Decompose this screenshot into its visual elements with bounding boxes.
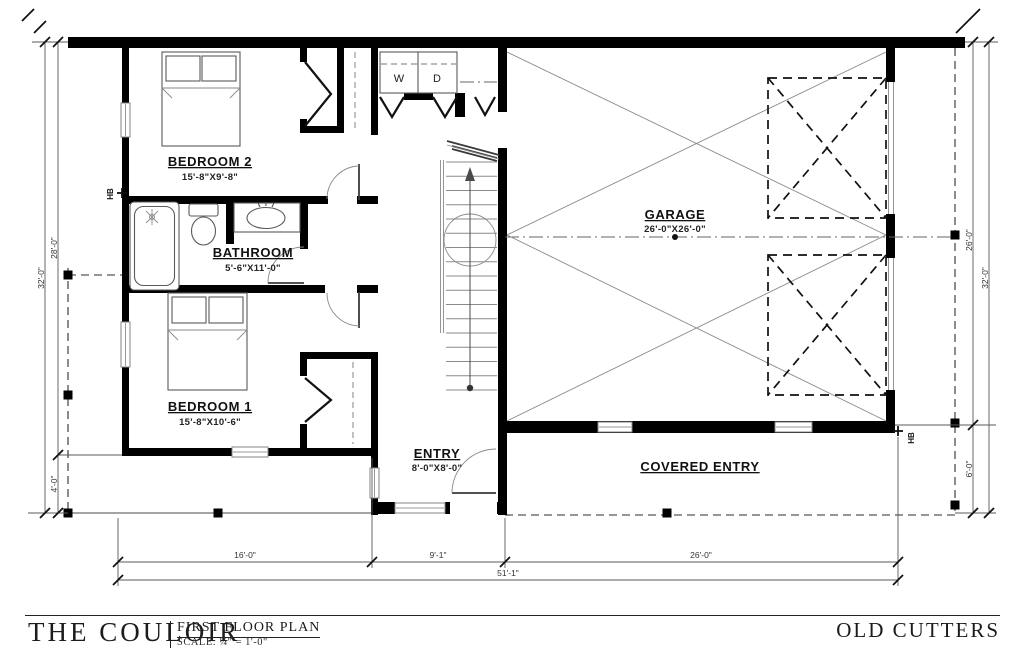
bedroom1-dims: 15'-8"X10'-6" bbox=[179, 417, 241, 428]
dim-left-main: 28'-0" bbox=[49, 237, 59, 259]
entry-dims: 8'-0"X8'-0" bbox=[412, 463, 463, 474]
porch-post bbox=[214, 509, 223, 518]
bedroom1-door bbox=[327, 292, 359, 328]
porch-post bbox=[951, 501, 960, 510]
bifold-door-icon bbox=[380, 97, 404, 117]
development-name: OLD CUTTERS bbox=[836, 618, 1000, 643]
title-block-rule bbox=[25, 615, 1000, 616]
porch-post bbox=[663, 509, 672, 518]
floor-plan-canvas: W D bbox=[0, 0, 1024, 663]
bathtub-icon bbox=[130, 202, 179, 290]
hose-bib-right-label: HB bbox=[907, 432, 916, 444]
bathroom-dims: 5'-6"X11'-0" bbox=[225, 263, 281, 274]
dim-right-overall: 32'-0" bbox=[980, 267, 990, 289]
porch-post bbox=[951, 231, 960, 240]
bifold-door-icon bbox=[433, 97, 457, 117]
floor-plan-sheet: W D bbox=[0, 0, 1024, 663]
window bbox=[121, 322, 130, 367]
porch-post bbox=[951, 419, 960, 428]
dim-right-garage: 26'-0" bbox=[964, 229, 974, 251]
sheet-title: FIRST FLOOR PLAN bbox=[177, 620, 320, 638]
laundry-closet: W D bbox=[380, 52, 457, 93]
dim-left-porch: 4'-0" bbox=[49, 476, 59, 493]
scale-note: SCALE: ¼" = 1'-0" bbox=[177, 637, 268, 648]
stair-treads bbox=[446, 162, 497, 390]
dim-bottom-entry: 9'-1" bbox=[430, 550, 447, 560]
window bbox=[598, 422, 632, 432]
bifold-door-icon bbox=[475, 97, 495, 115]
garage-storage-box bbox=[768, 255, 886, 395]
hose-bib-right: HB bbox=[893, 426, 916, 444]
dim-bottom-garage: 26'-0" bbox=[690, 550, 712, 560]
dryer-label: D bbox=[433, 73, 441, 85]
bifold-door-icon bbox=[305, 378, 331, 422]
staircase bbox=[441, 141, 500, 391]
covered-entry-label: COVERED ENTRY bbox=[640, 459, 759, 474]
porch-post bbox=[64, 271, 73, 280]
window bbox=[232, 447, 268, 457]
bed-icon-bedroom2 bbox=[162, 52, 240, 146]
dim-bottom-bedroom-wing: 16'-0" bbox=[234, 550, 256, 560]
bedroom2-label: BEDROOM 2 bbox=[168, 154, 252, 169]
garage-storage-box bbox=[768, 78, 886, 218]
dim-bottom-overall: 51'-1" bbox=[497, 568, 519, 578]
window bbox=[370, 468, 379, 498]
bedroom1-label: BEDROOM 1 bbox=[168, 399, 252, 414]
washer-label: W bbox=[394, 73, 405, 85]
bathroom-label: BATHROOM bbox=[213, 245, 293, 260]
sink-vanity-icon bbox=[234, 202, 300, 232]
window bbox=[121, 103, 130, 137]
porch-post bbox=[64, 391, 73, 400]
garage-label: GARAGE bbox=[645, 207, 706, 222]
entry-label: ENTRY bbox=[414, 446, 461, 461]
stair-direction-arrow bbox=[465, 167, 475, 391]
dim-left-overall: 32'-0" bbox=[36, 267, 46, 289]
bed-icon-bedroom1 bbox=[168, 293, 247, 390]
hose-bib-left-label: HB bbox=[106, 188, 115, 200]
bifold-door-icon bbox=[305, 62, 331, 126]
title-block-divider bbox=[170, 621, 171, 648]
garage-dims: 26'-0"X26'-0" bbox=[644, 224, 706, 235]
bedroom2-door bbox=[327, 164, 359, 200]
toilet-icon bbox=[189, 204, 218, 245]
dim-right-porch: 6'-0" bbox=[964, 461, 974, 478]
bedroom2-dims: 15'-8"X9'-8" bbox=[182, 172, 238, 183]
window bbox=[775, 422, 812, 432]
window bbox=[395, 503, 445, 513]
